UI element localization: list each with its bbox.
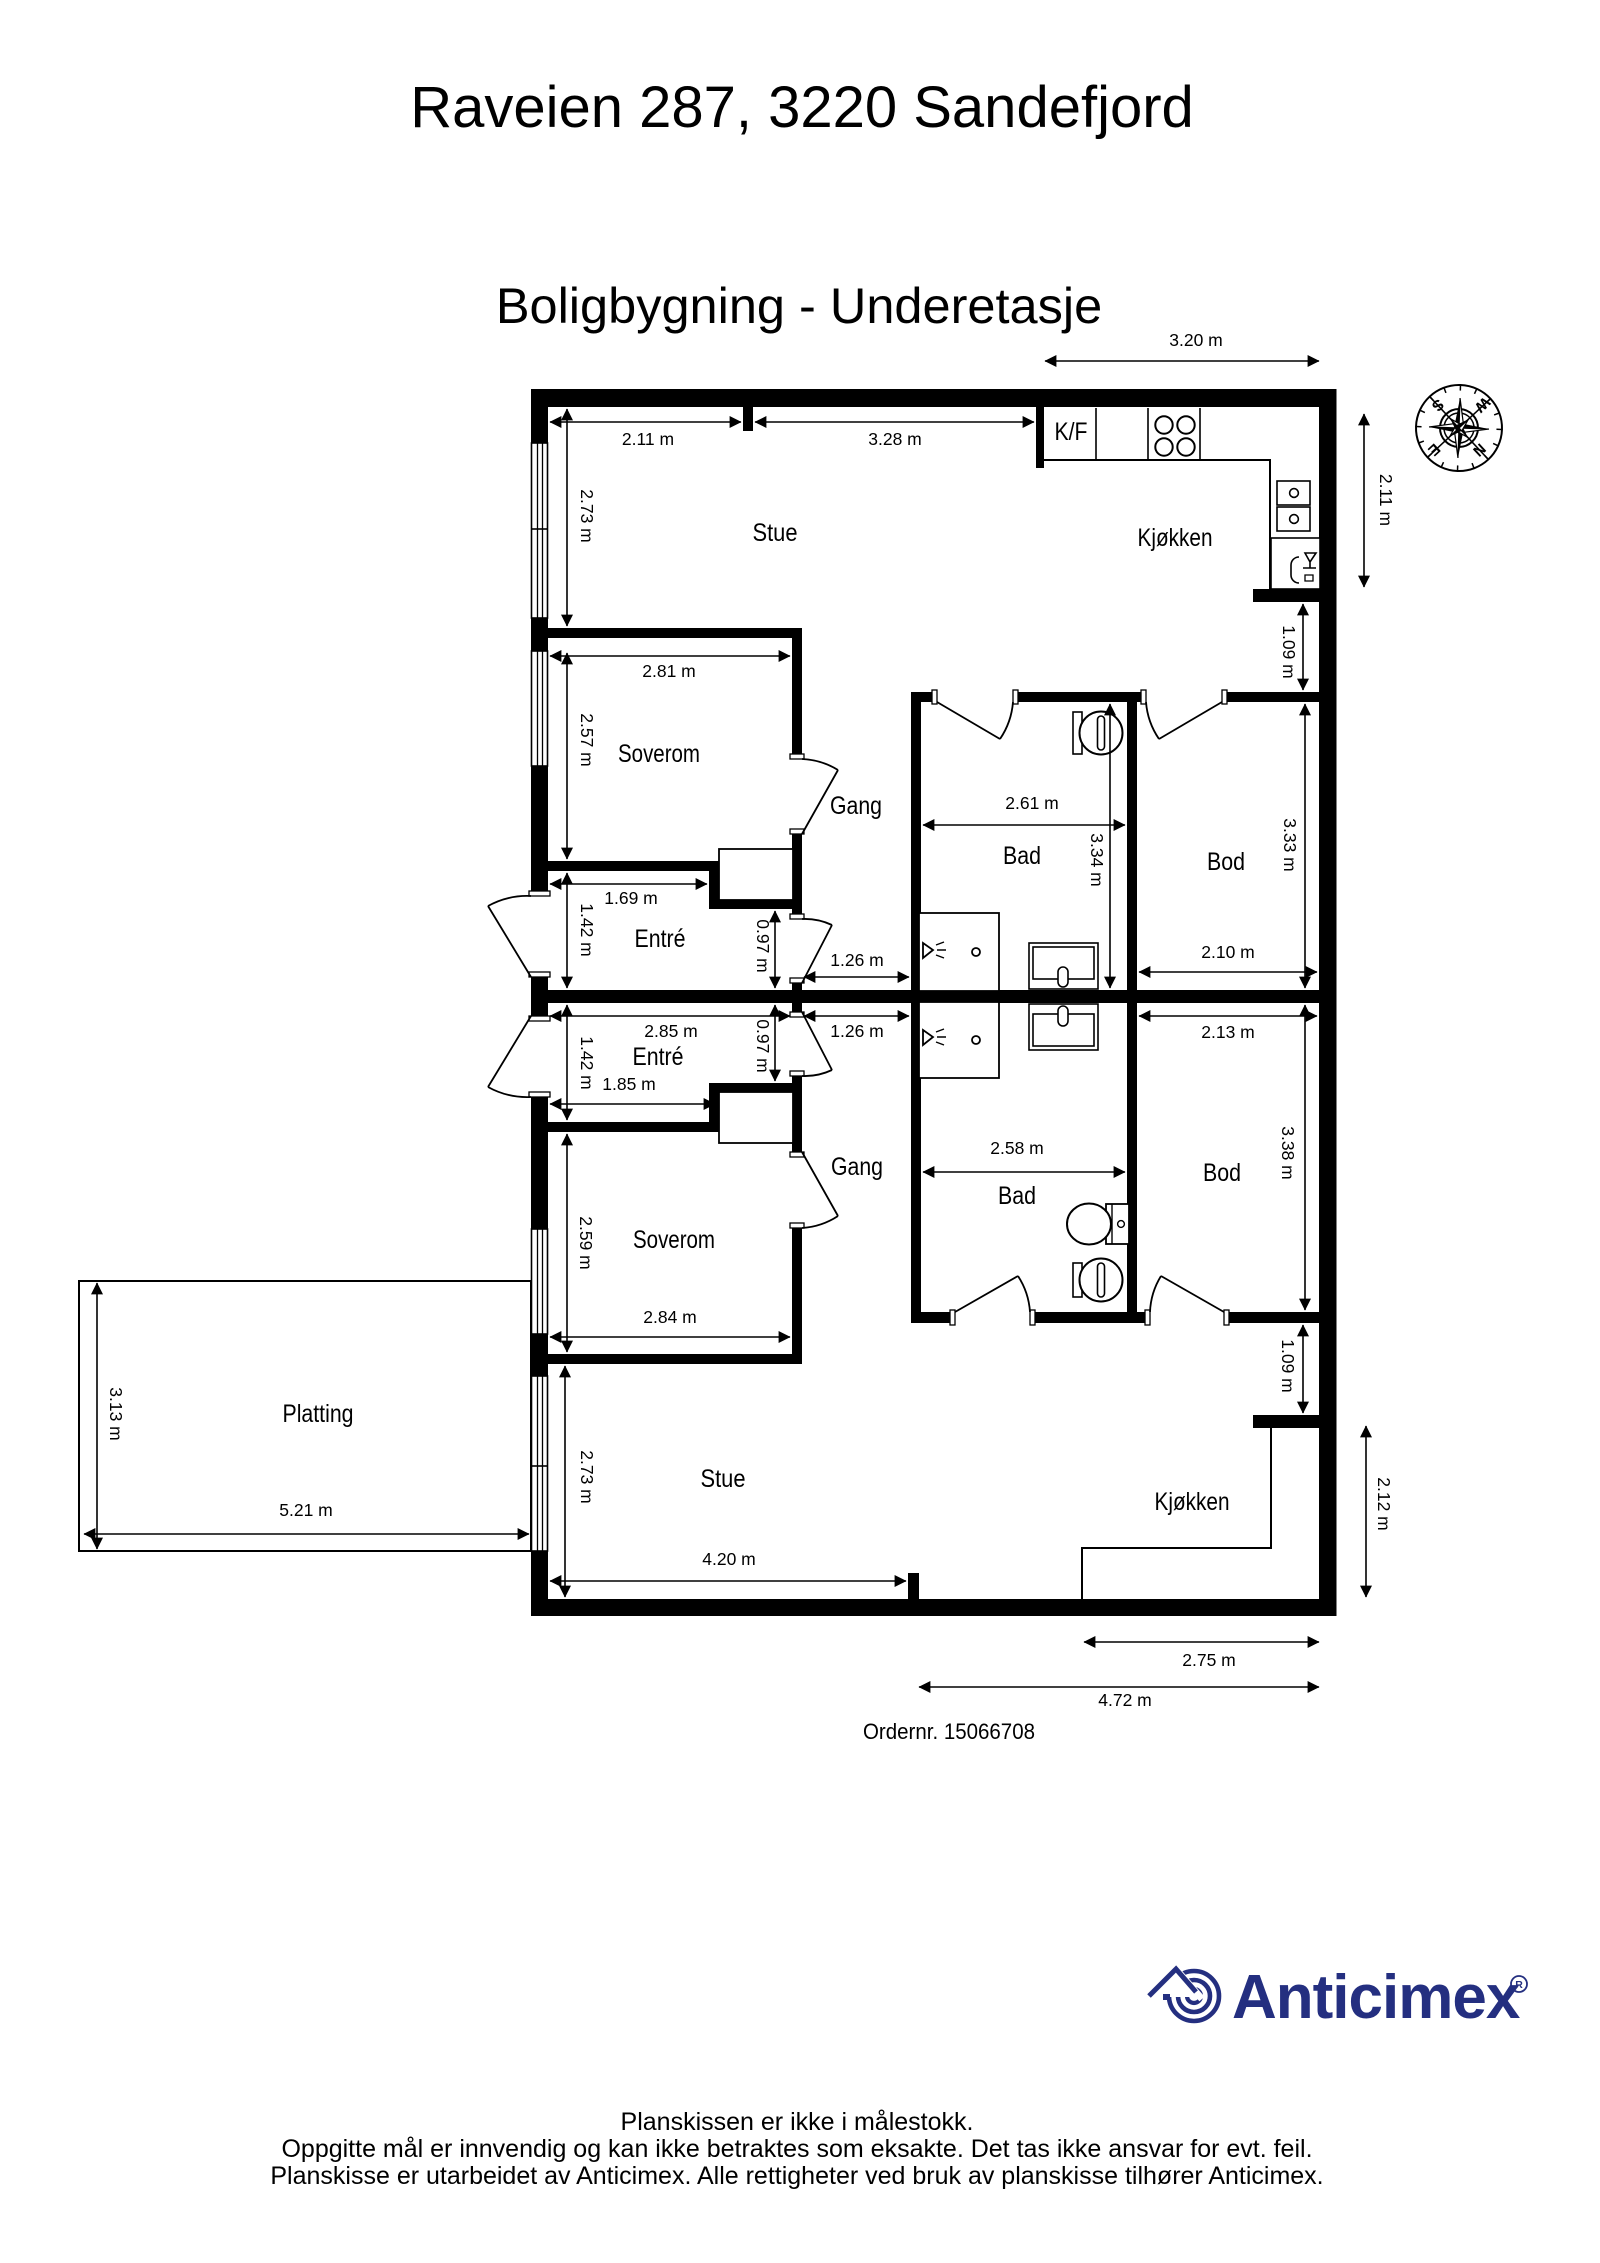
svg-text:1.26 m: 1.26 m — [830, 1021, 884, 1041]
svg-text:3.20 m: 3.20 m — [1169, 330, 1223, 350]
svg-text:1.09 m: 1.09 m — [1278, 1339, 1298, 1393]
svg-text:Ordernr. 15066708: Ordernr. 15066708 — [863, 1719, 1035, 1744]
svg-text:3.38 m: 3.38 m — [1278, 1126, 1298, 1180]
svg-text:1.85 m: 1.85 m — [602, 1074, 656, 1094]
svg-text:Kjøkken: Kjøkken — [1155, 1488, 1230, 1516]
svg-text:4.20 m: 4.20 m — [702, 1549, 756, 1569]
svg-text:Soverom: Soverom — [618, 740, 700, 768]
svg-text:3.13 m: 3.13 m — [106, 1387, 126, 1441]
svg-text:Oppgitte mål er innvendig og k: Oppgitte mål er innvendig og kan ikke be… — [281, 2135, 1312, 2163]
svg-text:3.28 m: 3.28 m — [868, 429, 922, 449]
svg-text:2.13 m: 2.13 m — [1201, 1022, 1255, 1042]
svg-text:2.11 m: 2.11 m — [622, 429, 674, 449]
svg-text:1.42 m: 1.42 m — [577, 1036, 597, 1090]
svg-text:2.85 m: 2.85 m — [644, 1021, 698, 1041]
svg-text:2.73 m: 2.73 m — [577, 1450, 597, 1504]
svg-text:Kjøkken: Kjøkken — [1138, 524, 1213, 552]
svg-text:Bad: Bad — [998, 1182, 1036, 1210]
svg-text:Entré: Entré — [633, 1043, 684, 1071]
svg-text:Soverom: Soverom — [633, 1226, 715, 1254]
svg-text:2.61 m: 2.61 m — [1005, 793, 1059, 813]
svg-text:Bod: Bod — [1203, 1159, 1241, 1187]
svg-text:1.09 m: 1.09 m — [1279, 625, 1299, 679]
svg-text:Stue: Stue — [753, 519, 798, 547]
svg-text:K/F: K/F — [1055, 418, 1088, 446]
svg-text:R: R — [1515, 1979, 1523, 1991]
svg-text:Gang: Gang — [831, 1153, 883, 1181]
svg-text:2.59 m: 2.59 m — [576, 1216, 596, 1270]
svg-text:2.81 m: 2.81 m — [642, 661, 696, 681]
svg-text:Bod: Bod — [1207, 848, 1245, 876]
svg-text:Platting: Platting — [283, 1400, 354, 1428]
svg-text:2.73 m: 2.73 m — [577, 489, 597, 543]
svg-text:Anticimex: Anticimex — [1232, 1963, 1521, 2032]
svg-text:Boligbygning - Underetasje: Boligbygning - Underetasje — [496, 277, 1102, 334]
svg-text:2.11 m: 2.11 m — [1376, 474, 1396, 526]
svg-text:4.72 m: 4.72 m — [1098, 1690, 1152, 1710]
svg-text:Raveien 287, 3220 Sandefjord: Raveien 287, 3220 Sandefjord — [410, 75, 1194, 140]
svg-text:Bad: Bad — [1003, 842, 1041, 870]
svg-text:0.97 m: 0.97 m — [753, 919, 773, 973]
svg-text:Planskissen er ikke i målestok: Planskissen er ikke i målestokk. — [621, 2108, 974, 2136]
svg-text:1.42 m: 1.42 m — [577, 903, 597, 957]
svg-text:3.34 m: 3.34 m — [1087, 833, 1107, 887]
svg-text:5.21 m: 5.21 m — [279, 1500, 333, 1520]
svg-text:Gang: Gang — [830, 792, 882, 820]
svg-text:Stue: Stue — [701, 1465, 746, 1493]
svg-text:2.57 m: 2.57 m — [577, 713, 597, 767]
svg-text:2.84 m: 2.84 m — [643, 1307, 697, 1327]
svg-text:1.26 m: 1.26 m — [830, 950, 884, 970]
svg-text:2.58 m: 2.58 m — [990, 1138, 1044, 1158]
svg-text:1.69 m: 1.69 m — [604, 888, 658, 908]
svg-text:Entré: Entré — [635, 925, 686, 953]
svg-text:2.10 m: 2.10 m — [1201, 942, 1255, 962]
svg-text:3.33 m: 3.33 m — [1280, 818, 1300, 872]
svg-text:2.12 m: 2.12 m — [1374, 1477, 1394, 1531]
svg-text:2.75 m: 2.75 m — [1182, 1650, 1236, 1670]
svg-text:Planskisse er utarbeidet av An: Planskisse er utarbeidet av Anticimex. A… — [270, 2162, 1323, 2190]
svg-text:0.97 m: 0.97 m — [753, 1019, 773, 1073]
